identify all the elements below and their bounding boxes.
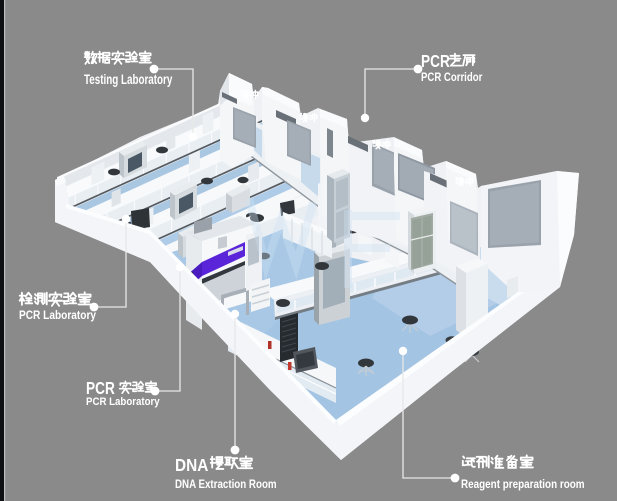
svg-text:PCR Corridor: PCR Corridor bbox=[421, 71, 483, 84]
svg-text:PCR Laboratory: PCR Laboratory bbox=[86, 397, 160, 409]
svg-text:DNA Extraction Room: DNA Extraction Room bbox=[175, 478, 277, 491]
svg-text:DNA: DNA bbox=[175, 456, 208, 475]
svg-text:PCR Laboratory: PCR Laboratory bbox=[19, 309, 96, 322]
svg-text:PCR: PCR bbox=[421, 53, 450, 72]
svg-text:Testing Laboratory: Testing Laboratory bbox=[84, 71, 173, 87]
svg-text:Reagent preparation room: Reagent preparation room bbox=[461, 478, 585, 491]
